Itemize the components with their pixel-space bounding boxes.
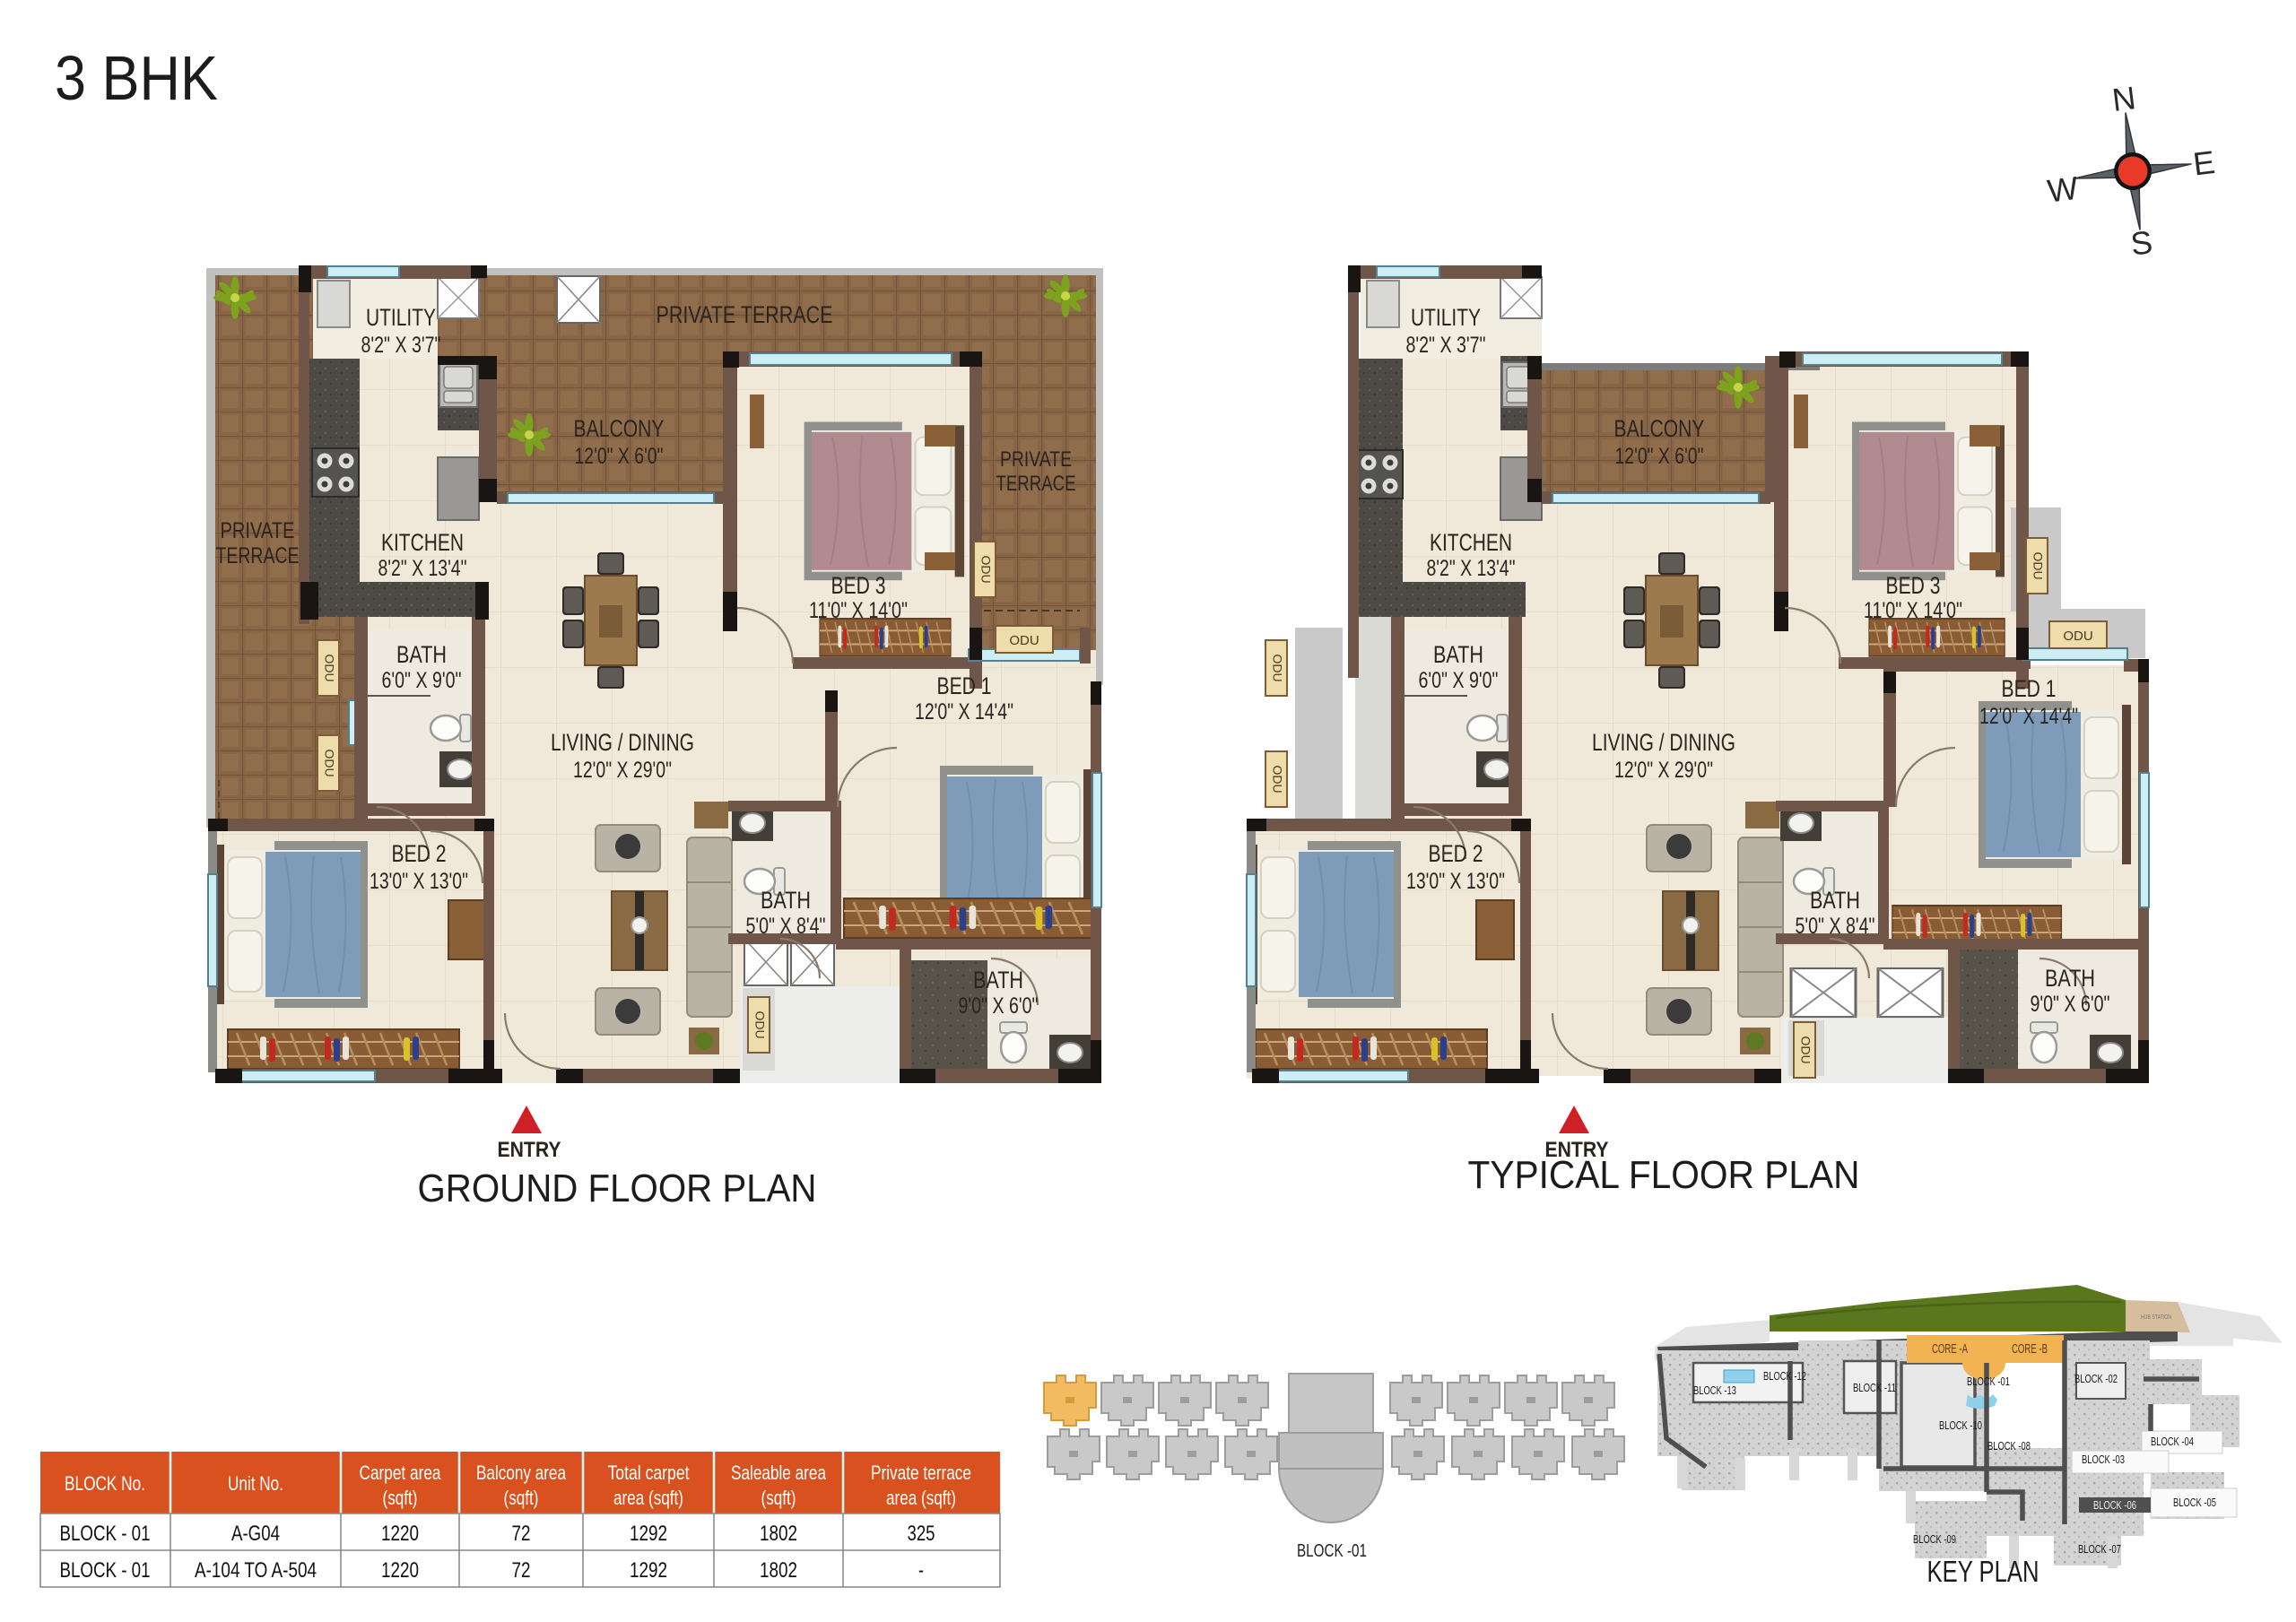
svg-text:BLOCK -01: BLOCK -01 <box>1967 1375 2010 1388</box>
svg-text:8'2" X 3'7": 8'2" X 3'7" <box>1406 333 1486 358</box>
svg-text:ENTRY: ENTRY <box>498 1138 561 1162</box>
svg-text:BED 3: BED 3 <box>1886 572 1941 599</box>
svg-text:BED 3: BED 3 <box>831 572 886 599</box>
svg-text:12'0" X 14'4": 12'0" X 14'4" <box>915 699 1013 724</box>
svg-text:BLOCK -07: BLOCK -07 <box>2078 1542 2121 1556</box>
svg-text:BATH: BATH <box>761 887 811 914</box>
svg-text:Balcony area: Balcony area <box>476 1462 567 1484</box>
svg-text:Carpet area: Carpet area <box>360 1462 442 1484</box>
svg-text:12'0" X 6'0": 12'0" X 6'0" <box>575 444 664 469</box>
svg-text:9'0" X 6'0": 9'0" X 6'0" <box>2031 992 2110 1017</box>
svg-text:13'0" X 13'0": 13'0" X 13'0" <box>1406 869 1505 894</box>
svg-text:BED 2: BED 2 <box>392 840 447 867</box>
svg-text:BLOCK -03: BLOCK -03 <box>2082 1453 2125 1466</box>
svg-text:BED 2: BED 2 <box>1429 840 1483 867</box>
svg-text:6'0" X 9'0": 6'0" X 9'0" <box>1419 668 1499 693</box>
svg-text:325: 325 <box>908 1522 935 1546</box>
svg-text:BLOCK No.: BLOCK No. <box>65 1472 145 1495</box>
svg-text:1802: 1802 <box>760 1558 797 1583</box>
svg-text:72: 72 <box>512 1522 531 1546</box>
svg-text:HUB STATION: HUB STATION <box>2141 1314 2171 1321</box>
svg-text:area (sqft): area (sqft) <box>886 1487 956 1509</box>
svg-text:-: - <box>918 1558 924 1583</box>
svg-text:6'0" X 9'0": 6'0" X 9'0" <box>382 668 462 693</box>
svg-text:BATH: BATH <box>1433 641 1483 668</box>
svg-text:Saleable area: Saleable area <box>731 1462 827 1484</box>
svg-text:72: 72 <box>512 1558 531 1583</box>
svg-text:S: S <box>2128 223 2154 263</box>
svg-text:5'0" X 8'4": 5'0" X 8'4" <box>1796 914 1875 939</box>
svg-text:12'0" X 14'4": 12'0" X 14'4" <box>1979 704 2078 729</box>
svg-text:CORE -B: CORE -B <box>2012 1341 2048 1357</box>
svg-text:LIVING / DINING: LIVING / DINING <box>551 729 694 756</box>
svg-text:Total carpet: Total carpet <box>608 1462 690 1484</box>
svg-text:BLOCK -05: BLOCK -05 <box>2173 1496 2216 1509</box>
svg-text:BLOCK -02: BLOCK -02 <box>2074 1372 2118 1385</box>
svg-text:BLOCK -13: BLOCK -13 <box>1693 1383 1736 1397</box>
svg-text:(sqft): (sqft) <box>383 1487 418 1509</box>
svg-text:(sqft): (sqft) <box>761 1487 796 1509</box>
svg-text:1220: 1220 <box>381 1522 419 1546</box>
svg-text:BLOCK -06: BLOCK -06 <box>2093 1498 2136 1512</box>
svg-text:BLOCK -11: BLOCK -11 <box>1853 1381 1896 1394</box>
svg-text:BLOCK -10: BLOCK -10 <box>1939 1418 1982 1432</box>
svg-text:BLOCK -04: BLOCK -04 <box>2151 1435 2194 1448</box>
svg-text:1292: 1292 <box>630 1522 667 1546</box>
svg-text:1220: 1220 <box>381 1558 419 1583</box>
svg-text:3 BHK: 3 BHK <box>55 43 218 113</box>
svg-text:E: E <box>2191 143 2217 183</box>
svg-text:BATH: BATH <box>2045 965 2095 992</box>
svg-text:BED 1: BED 1 <box>2002 675 2057 702</box>
svg-text:BATH: BATH <box>973 967 1023 993</box>
svg-text:BLOCK - 01: BLOCK - 01 <box>60 1522 151 1546</box>
svg-text:12'0" X 6'0": 12'0" X 6'0" <box>1615 444 1704 469</box>
svg-text:LIVING / DINING: LIVING / DINING <box>1592 729 1735 756</box>
svg-text:1802: 1802 <box>760 1522 797 1546</box>
svg-text:(sqft): (sqft) <box>504 1487 539 1509</box>
svg-text:8'2" X 13'4": 8'2" X 13'4" <box>378 556 467 581</box>
svg-text:5'0" X 8'4": 5'0" X 8'4" <box>746 914 826 939</box>
svg-text:8'2" X 13'4": 8'2" X 13'4" <box>1427 556 1516 581</box>
svg-text:KEY PLAN: KEY PLAN <box>1927 1555 2039 1588</box>
svg-text:12'0" X 29'0": 12'0" X 29'0" <box>1614 758 1713 783</box>
svg-text:BED 1: BED 1 <box>937 672 992 699</box>
svg-text:TERRACE: TERRACE <box>216 543 300 568</box>
svg-text:PRIVATE TERRACE: PRIVATE TERRACE <box>657 301 833 328</box>
svg-text:PRIVATE: PRIVATE <box>221 518 295 543</box>
svg-text:BLOCK -08: BLOCK -08 <box>1987 1439 2031 1453</box>
svg-text:11'0" X 14'0": 11'0" X 14'0" <box>809 598 908 623</box>
svg-text:TERRACE: TERRACE <box>996 472 1076 496</box>
svg-text:13'0" X 13'0": 13'0" X 13'0" <box>370 869 468 894</box>
svg-text:BATH: BATH <box>396 641 447 668</box>
svg-text:PRIVATE: PRIVATE <box>1000 447 1072 472</box>
svg-text:W: W <box>2046 169 2081 210</box>
svg-text:Unit No.: Unit No. <box>228 1472 283 1495</box>
svg-text:BLOCK -01: BLOCK -01 <box>1297 1541 1367 1561</box>
svg-text:BATH: BATH <box>1810 887 1860 914</box>
svg-text:area (sqft): area (sqft) <box>613 1487 683 1509</box>
svg-text:BLOCK -12: BLOCK -12 <box>1763 1369 1806 1383</box>
svg-text:BLOCK -09: BLOCK -09 <box>1913 1532 1956 1546</box>
svg-text:Private terrace: Private terrace <box>871 1462 971 1484</box>
svg-text:A-G04: A-G04 <box>231 1522 280 1546</box>
svg-text:11'0" X 14'0": 11'0" X 14'0" <box>1864 598 1962 623</box>
svg-text:UTILITY: UTILITY <box>366 304 436 331</box>
svg-text:1292: 1292 <box>630 1558 667 1583</box>
svg-text:KITCHEN: KITCHEN <box>1430 529 1512 556</box>
svg-text:BLOCK - 01: BLOCK - 01 <box>60 1558 151 1583</box>
svg-text:BALCONY: BALCONY <box>574 415 665 442</box>
svg-text:12'0" X 29'0": 12'0" X 29'0" <box>573 758 672 783</box>
svg-text:9'0" X 6'0": 9'0" X 6'0" <box>959 993 1039 1019</box>
svg-text:CORE -A: CORE -A <box>1932 1341 1968 1357</box>
svg-text:8'2" X 3'7": 8'2" X 3'7" <box>361 333 441 358</box>
svg-text:BALCONY: BALCONY <box>1614 415 1705 442</box>
svg-text:GROUND FLOOR PLAN: GROUND FLOOR PLAN <box>418 1167 817 1210</box>
svg-text:N: N <box>2110 79 2138 118</box>
svg-text:TYPICAL FLOOR PLAN: TYPICAL FLOOR PLAN <box>1468 1153 1860 1197</box>
svg-text:KITCHEN: KITCHEN <box>381 529 464 556</box>
svg-text:A-104 TO A-504: A-104 TO A-504 <box>195 1558 317 1583</box>
svg-text:UTILITY: UTILITY <box>1411 304 1481 331</box>
